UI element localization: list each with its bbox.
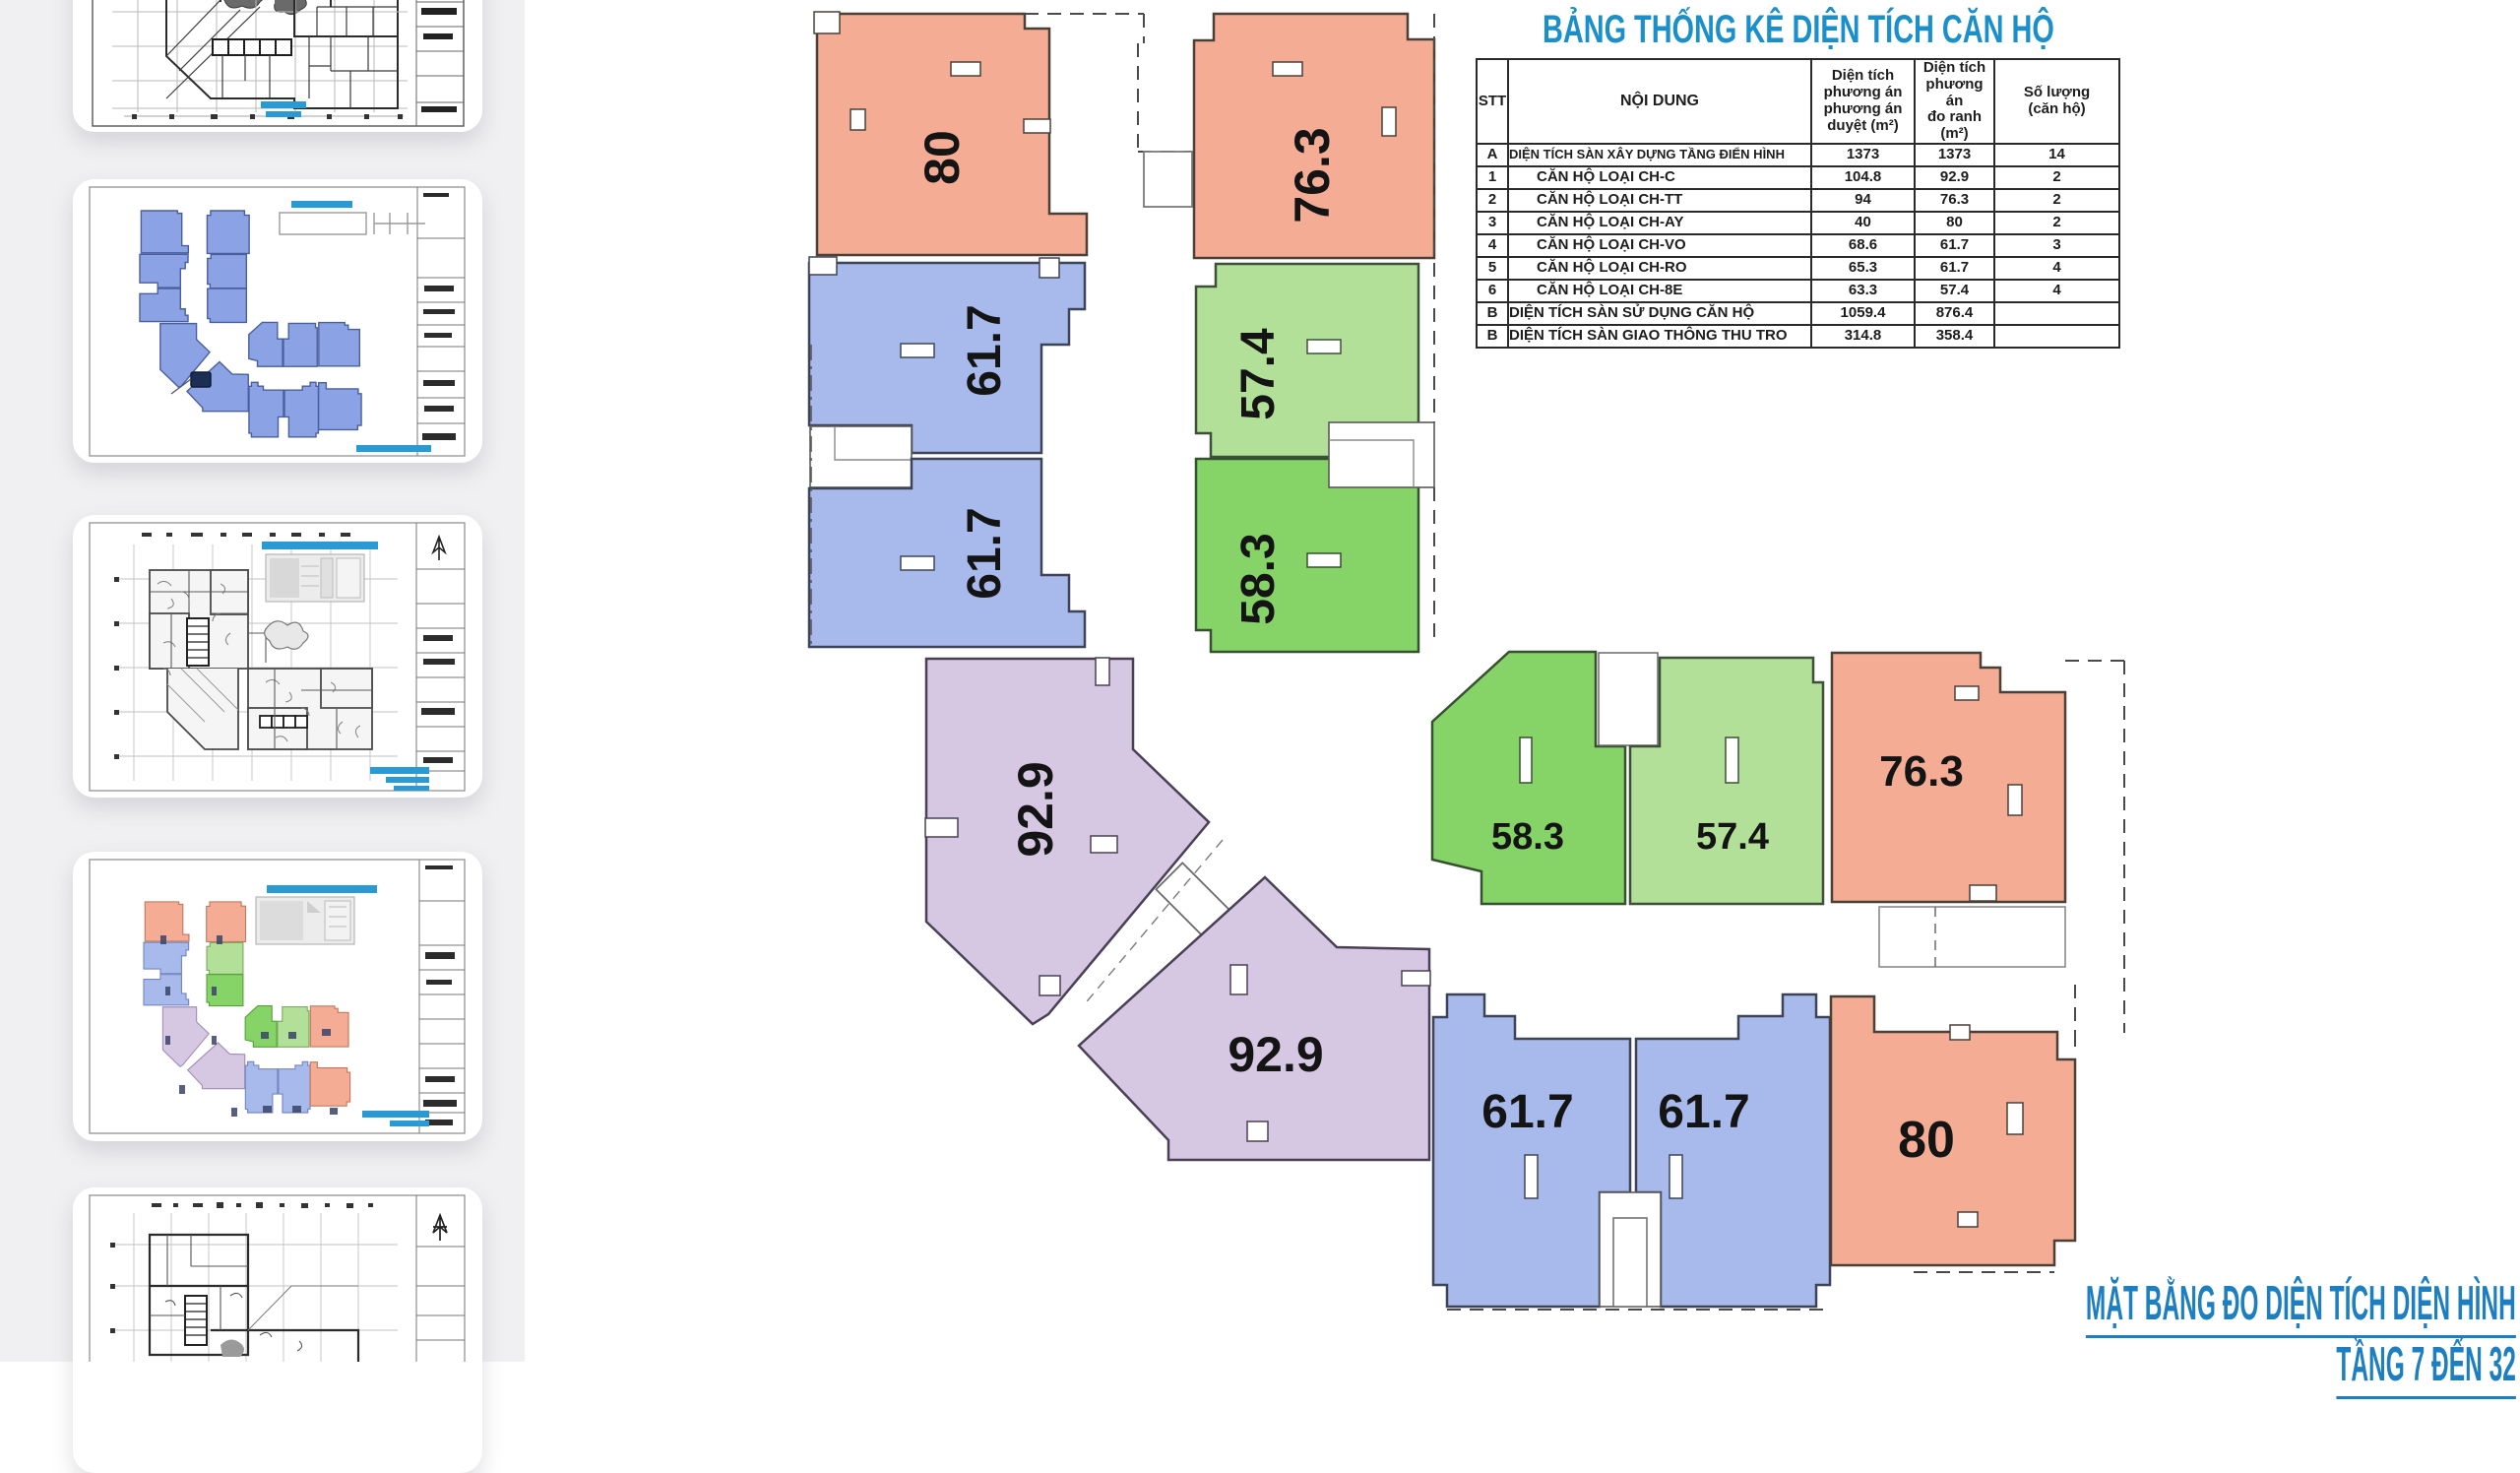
svg-text:61.7: 61.7 bbox=[1658, 1086, 1749, 1138]
svg-text:76.3: 76.3 bbox=[1285, 127, 1340, 223]
svg-text:80: 80 bbox=[914, 130, 970, 185]
svg-text:58.3: 58.3 bbox=[1232, 533, 1285, 624]
svg-text:92.9: 92.9 bbox=[1008, 761, 1063, 857]
svg-text:58.3: 58.3 bbox=[1491, 816, 1564, 858]
svg-text:61.7: 61.7 bbox=[959, 304, 1011, 396]
svg-text:57.4: 57.4 bbox=[1232, 328, 1285, 420]
svg-text:57.4: 57.4 bbox=[1696, 816, 1769, 858]
svg-text:92.9: 92.9 bbox=[1228, 1027, 1323, 1082]
svg-text:76.3: 76.3 bbox=[1879, 747, 1964, 796]
svg-text:80: 80 bbox=[1898, 1112, 1955, 1169]
svg-text:61.7: 61.7 bbox=[1481, 1086, 1573, 1138]
svg-text:61.7: 61.7 bbox=[959, 507, 1011, 599]
